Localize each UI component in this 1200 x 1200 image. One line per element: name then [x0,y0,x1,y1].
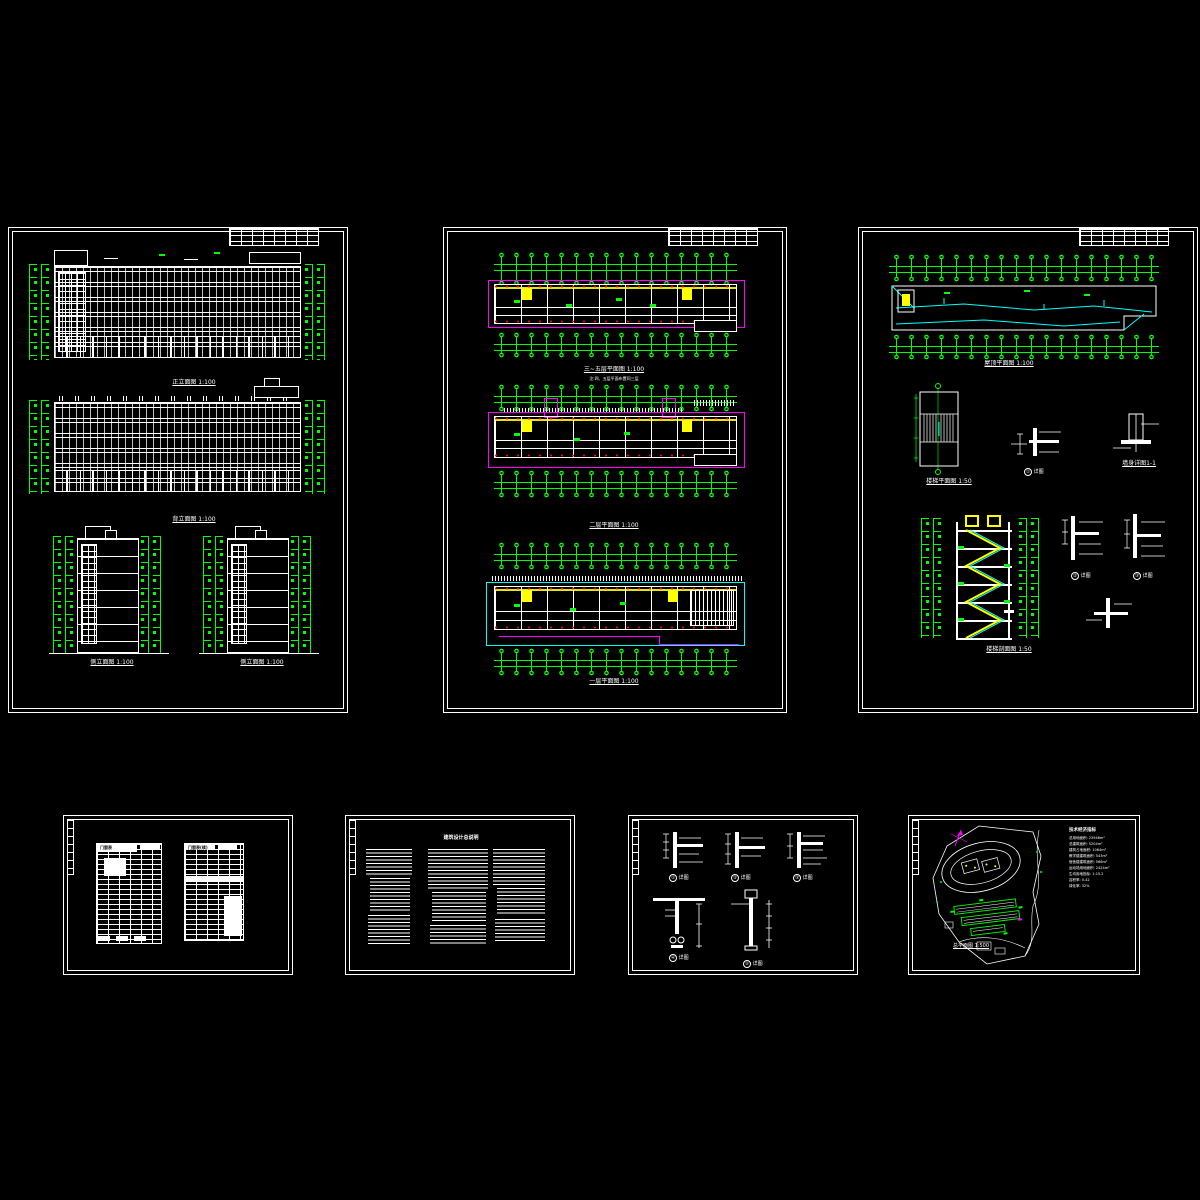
north-arrow-icon [951,830,967,846]
axis-grid [494,546,737,566]
drawing-title-first-plan: 一层平面图 1:100 [514,678,714,686]
drawing-title-second-plan: 二层平面图 1:100 [514,522,714,530]
dimension-chain [1019,518,1027,638]
outdoor-hatch [492,576,742,581]
dimension-chain [203,536,211,654]
dimension-chain [317,400,325,494]
indicator-block: 技术经济指标 总用地面积: 23946m² 总建筑面积: 5204m² 建筑占地… [1069,826,1110,889]
notes-text-block [493,849,545,885]
table-cell-fill [104,858,126,876]
dimension-chain [65,536,73,654]
dimension-chain [303,536,311,654]
annotation-mark [159,254,165,256]
corridor-line [495,315,736,316]
stair-section-drawing [954,514,1014,642]
title-strip [349,819,356,875]
table-cell-fill [98,936,110,941]
dimension-chain [317,264,325,360]
cad-canvas: { "canvas": { "background": "#000000" },… [0,0,1200,1200]
door-mark [624,432,630,435]
door-mark [620,602,626,605]
leader-line [104,258,118,259]
dimension-chain [141,536,149,654]
wall-detail-drawing [1121,512,1167,568]
drawing-title-side-left: 侧立面图 1:100 [67,659,157,667]
notes-text-block [370,878,410,912]
wall-section-drawing [1111,412,1161,456]
stair-plan-drawing [914,384,964,474]
plan-right-wing [694,454,737,466]
dimension-chain [153,536,161,654]
detail-label: ⑤ 详图 [743,960,763,969]
tower-window-column [231,544,247,644]
notes-title: 建筑设计总说明 [361,834,561,842]
annotation-mark [214,252,220,254]
sheet-elevations: 正立面图 1:100 背立面图 1:100 侧立面图 1:100 侧立面图 1:… [8,227,348,713]
axis-line [499,636,659,637]
notes-text-block [432,892,486,922]
notes-text-block [368,915,410,945]
detail-number: ④ [669,954,677,962]
detail-label: ② 详图 [731,874,751,883]
axis-grid [494,474,737,494]
drawing-title-stair-plan: 楼梯平面图 1:50 [879,478,1019,486]
tower-window-column [81,544,97,644]
detail-number: ① [669,874,677,882]
notes-text-block [497,888,545,916]
table-header-fill [140,844,160,849]
axis-grid [494,256,737,282]
stairwell-highlight [668,590,678,602]
ground-floor-band [54,470,301,492]
title-strip [912,819,919,875]
door-mark [574,438,580,441]
dimension-chain [29,264,37,360]
drawing-title-roof-plan: 屋顶平面图 1:100 [919,360,1099,368]
corridor-line [495,440,736,441]
axis-line [659,636,660,644]
detail-drawing-4 [651,890,707,952]
dimension-chain [41,264,49,360]
title-block-table [668,228,758,246]
door-mark [514,604,520,607]
axis-line [659,644,739,645]
dimension-chain [305,400,313,494]
sheet-roof-details: 屋顶平面图 1:100 楼梯平面图 1:50 ① 详图 墙身详图1-1 [858,227,1198,713]
table-band-fill [185,876,243,882]
drawing-title-upper-plan: 三~五层平面图 1:100 [514,366,714,374]
stairwell-highlight [682,420,692,432]
door-mark [514,433,520,436]
table-title: 门窗表(续) [188,845,208,850]
detail-label: ③ 详图 [1133,572,1153,581]
ground-line [199,653,319,654]
indicator-title: 技术经济指标 [1069,826,1110,835]
title-block-table [229,228,319,246]
door-mark [570,608,576,611]
site-roads [959,830,1039,956]
notes-text-block [428,849,488,889]
ground-floor-band [54,336,301,358]
axis-grid [494,652,737,672]
detail-label: ③ 详图 [793,874,813,883]
detail-label: ① 详图 [1024,468,1044,477]
dimension-chain [41,400,49,494]
plan-note: 注:四、五层平面布置同三层 [504,376,724,382]
detail-number: ③ [793,874,801,882]
detail-number: ② [731,874,739,882]
drawing-title-stair-section: 楼梯剖面图 1:50 [929,646,1089,654]
notes-text-block [495,919,545,941]
leader-line [184,259,198,260]
axis-grid [494,336,737,354]
table-cell-fill [134,936,146,941]
drawing-title-site-plan: 总平面图 1:500 [931,942,1011,950]
detail-drawing-1 [659,830,705,874]
indicator-line: 绿化率: 32% [1069,883,1110,889]
dimension-chain [29,400,37,494]
penthouse-left [54,250,88,266]
penthouse-right [254,386,299,398]
lecture-room-seating [690,590,734,626]
detail-drawing-3 [781,830,829,874]
detail-label: ② 详图 [1071,572,1091,581]
door-mark [566,304,572,307]
ground-line [49,653,169,654]
sheet-notes: 建筑设计总说明 [345,815,575,975]
detail-drawing-2 [721,830,767,874]
stairwell-highlight [522,420,532,432]
notes-text-block [366,849,412,875]
column-nodes [494,626,737,629]
corridor-line [495,448,736,449]
detail-number: ① [1024,468,1032,476]
roof-detail-drawing [1009,424,1064,466]
table-cell-fill [116,936,128,941]
sheet-plans: 三~五层平面图 1:100 注:四、五层平面布置同三层 二层平面图 1:100 … [443,227,787,713]
axis-grid [889,258,1159,278]
corridor-line [495,307,736,308]
drawing-title-side-right: 侧立面图 1:100 [217,659,307,667]
sheet-site-plan: 技术经济指标 总用地面积: 23946m² 总建筑面积: 5204m² 建筑占地… [908,815,1140,975]
stairwell-highlight [682,288,692,300]
penthouse-right [249,252,301,264]
eave-detail-drawing [1084,596,1134,636]
sheet-details: ① 详图 ② 详图 ③ 详图 ④ 详图 ⑤ [628,815,858,975]
ramp-hatch [694,400,734,406]
door-mark [514,300,520,303]
wall-detail-drawing [1059,514,1105,570]
drawing-title-wall-section: 墙身详图1-1 [1099,460,1179,468]
dimension-chain [291,536,299,654]
roof-box [264,378,280,387]
detail-number: ③ [1133,572,1141,580]
table-title: 门窗表 [100,845,112,850]
door-mark [616,298,622,301]
dimension-chain [305,264,313,360]
dimension-chain [53,536,61,654]
detail-number: ② [1071,572,1079,580]
notes-text-block [430,925,486,945]
title-block-table [1079,228,1169,246]
stairwell-highlight [522,288,532,300]
sheet-schedule: 门窗表 门窗表(续) [63,815,293,975]
dimension-chain [921,518,929,638]
drawing-title-rear-elevation: 背立面图 1:100 [94,516,294,524]
title-strip [632,819,639,875]
table-cell-fill [224,896,242,936]
dimension-chain [933,518,941,638]
detail-drawing-5 [729,888,777,958]
door-mark [650,304,656,307]
running-track [936,833,1026,900]
table-header-fill [219,844,237,849]
title-strip [67,819,74,875]
proposed-building [949,894,1025,940]
plan-right-wing [694,320,737,332]
roof-plan-drawing [884,284,1164,332]
stairwell-highlight [522,590,532,602]
detail-label: ① 详图 [669,874,689,883]
dimension-chain [1031,518,1039,638]
axis-grid [889,338,1159,356]
detail-number: ⑤ [743,960,751,968]
dimension-chain [215,536,223,654]
detail-label: ④ 详图 [669,954,689,963]
